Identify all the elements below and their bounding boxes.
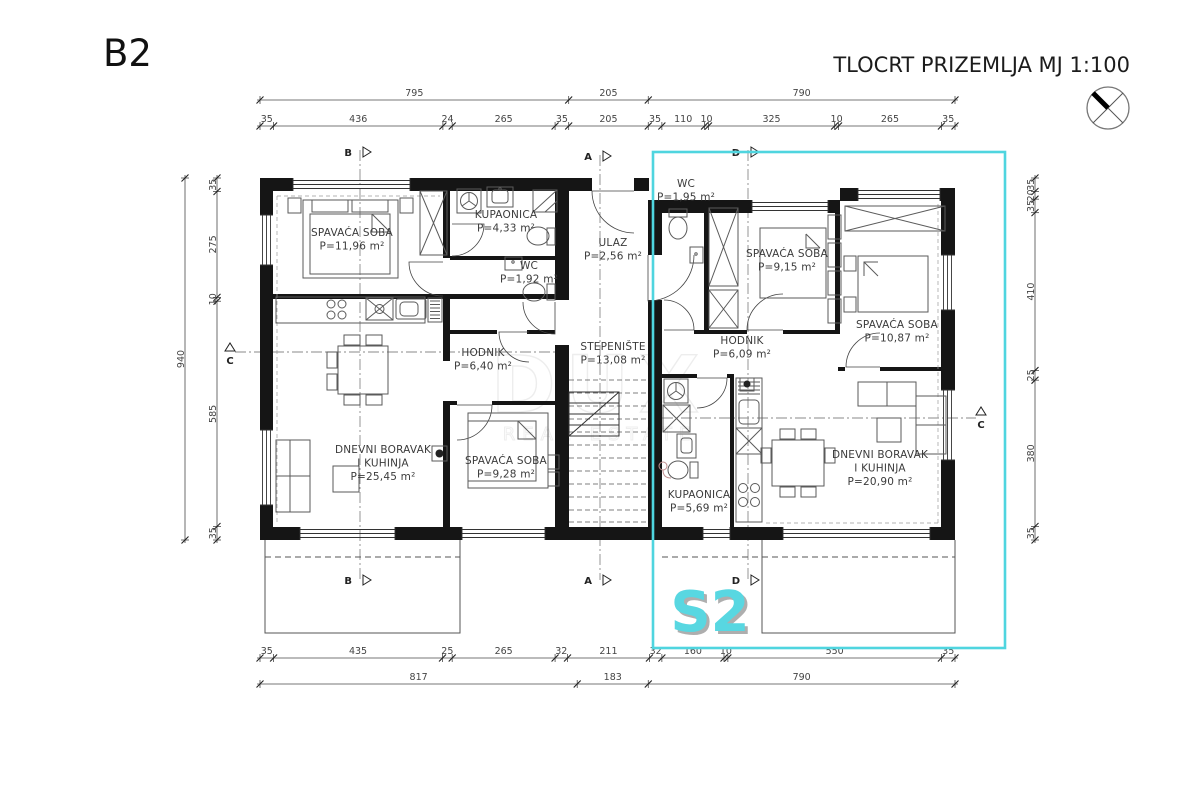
dim-value: 211 bbox=[599, 646, 617, 657]
section-marker-C: C bbox=[226, 356, 233, 367]
dim-value: 10 bbox=[700, 114, 712, 125]
dim-value: 35 bbox=[208, 527, 219, 539]
door-arc bbox=[523, 302, 555, 334]
s2-label: S2 bbox=[670, 580, 749, 645]
dining-left bbox=[327, 335, 388, 405]
room-area-wc-right: P=1,95 m² bbox=[657, 192, 715, 204]
room-area-stepeniste: P=13,08 m² bbox=[581, 355, 646, 367]
dim-top-detail: 35436242653520535110103251026535 bbox=[257, 114, 959, 130]
room-name-living-left: DNEVNI BORAVAK bbox=[335, 444, 432, 456]
room-name-living-right: DNEVNI BORAVAK bbox=[832, 449, 929, 461]
dim-value: 35 bbox=[261, 114, 273, 125]
dim-value: 265 bbox=[495, 646, 513, 657]
dim-value: 265 bbox=[495, 114, 513, 125]
wardrobe-right-3 bbox=[845, 206, 945, 231]
dim-value: 35 bbox=[208, 179, 219, 191]
room-name-living-right: I KUHINJA bbox=[854, 463, 906, 475]
dim-value: 205 bbox=[599, 88, 617, 99]
dim-value: 380 bbox=[1026, 444, 1037, 462]
door-arc bbox=[664, 300, 694, 330]
north-icon bbox=[1087, 87, 1129, 129]
dim-left-detail: 352751058535 bbox=[208, 175, 221, 544]
room-name-ulaz: ULAZ bbox=[599, 237, 628, 249]
dim-value: 585 bbox=[208, 405, 219, 423]
dim-value: 25 bbox=[1026, 369, 1037, 381]
dim-value: 410 bbox=[1026, 283, 1037, 301]
dim-value: 20 bbox=[1026, 189, 1037, 201]
toilet-right-bath bbox=[668, 461, 698, 479]
dim-bottom-overall: 817183790 bbox=[257, 672, 959, 688]
room-area-bathroom-right: P=5,69 m² bbox=[670, 503, 728, 515]
floor-plan-canvas: DUX REAL ESTATE B2 TLOCRT PRIZEMLJA MJ 1… bbox=[0, 0, 1200, 800]
kitchen-left bbox=[276, 297, 426, 323]
room-name-stepeniste: STEPENIŠTE bbox=[580, 340, 645, 353]
section-marker-A: A bbox=[584, 152, 592, 163]
room-area-hodnik-left: P=6,40 m² bbox=[454, 361, 512, 373]
room-name-bedroom2-left: SPAVAĆA SOBA bbox=[465, 454, 548, 467]
room-area-living-right: P=20,90 m² bbox=[848, 476, 913, 488]
dim-value: 795 bbox=[405, 88, 423, 99]
room-name-wc-left: WC bbox=[520, 260, 538, 272]
terrace-left bbox=[265, 540, 460, 633]
dim-value: 24 bbox=[441, 114, 453, 125]
plan-code: B2 bbox=[103, 32, 152, 75]
room-area-ulaz: P=2,56 m² bbox=[584, 251, 642, 263]
room-area-living-left: P=25,45 m² bbox=[351, 471, 416, 483]
room-area-hodnik-right: P=6,09 m² bbox=[713, 349, 771, 361]
room-area-bathroom-left: P=4,33 m² bbox=[477, 223, 535, 235]
door-arc bbox=[457, 405, 492, 440]
room-labels: SPAVAĆA SOBAP=11,96 m²KUPAONICAP=4,33 m²… bbox=[311, 178, 939, 515]
room-name-hodnik-left: HODNIK bbox=[461, 347, 505, 359]
room-name-hodnik-right: HODNIK bbox=[720, 335, 764, 347]
room-area-bedroom2-left: P=9,28 m² bbox=[477, 469, 535, 481]
room-name-bathroom-left: KUPAONICA bbox=[475, 209, 538, 221]
section-marker-C: C bbox=[977, 420, 984, 431]
dim-top-overall: 795205790 bbox=[257, 88, 959, 104]
room-area-bedroom1-right: P=9,15 m² bbox=[758, 262, 816, 274]
dim-left-overall: 940 bbox=[176, 175, 189, 544]
room-name-bedroom2-right: SPAVAĆA SOBA bbox=[856, 318, 939, 331]
door-arc bbox=[747, 294, 783, 330]
tv-outlet-right bbox=[740, 378, 754, 391]
kitchen-right bbox=[736, 378, 762, 522]
dim-value: 205 bbox=[599, 114, 617, 125]
dim-value: 10 bbox=[831, 114, 843, 125]
dim-value: 32 bbox=[555, 646, 567, 657]
dim-value: 436 bbox=[349, 114, 367, 125]
room-name-bathroom-right: KUPAONICA bbox=[668, 489, 731, 501]
toilet-right-wc bbox=[669, 209, 687, 239]
dim-value: 35 bbox=[1026, 200, 1037, 212]
room-name-living-left: I KUHINJA bbox=[357, 458, 409, 470]
dim-value: 183 bbox=[604, 672, 622, 683]
section-marker-B: B bbox=[344, 148, 352, 159]
dim-value: 35 bbox=[556, 114, 568, 125]
dim-value: 35 bbox=[942, 114, 954, 125]
dim-value: 25 bbox=[441, 646, 453, 657]
dim-right-detail: 3520354102538035 bbox=[1026, 175, 1039, 544]
page-title: TLOCRT PRIZEMLJA bbox=[832, 53, 1032, 77]
room-name-wc-right: WC bbox=[677, 178, 695, 190]
sink-right-wc bbox=[690, 247, 703, 263]
section-marker-D: D bbox=[732, 148, 740, 159]
dim-value: 940 bbox=[176, 350, 187, 368]
dishwasher-left bbox=[428, 298, 442, 322]
scale-label: MJ 1:100 bbox=[1038, 53, 1130, 77]
dim-value: 790 bbox=[793, 88, 811, 99]
room-area-bedroom2-right: P=10,87 m² bbox=[865, 333, 930, 345]
dim-value: 790 bbox=[793, 672, 811, 683]
room-name-bedroom1-right: SPAVAĆA SOBA bbox=[746, 247, 829, 260]
dim-value: 435 bbox=[349, 646, 367, 657]
section-marker-B: B bbox=[344, 576, 352, 587]
room-area-wc-left: P=1,92 m² bbox=[500, 274, 558, 286]
door-arc bbox=[648, 255, 694, 301]
door-arc bbox=[409, 262, 443, 296]
dim-value: 275 bbox=[208, 235, 219, 253]
dim-value: 817 bbox=[410, 672, 428, 683]
room-name-bedroom-left: SPAVAĆA SOBA bbox=[311, 226, 394, 239]
dim-value: 35 bbox=[261, 646, 273, 657]
wardrobe-right-1 bbox=[709, 208, 738, 286]
wardrobe-right-2 bbox=[709, 290, 738, 328]
dim-value: 35 bbox=[1026, 527, 1037, 539]
dim-value: 35 bbox=[649, 114, 661, 125]
section-marker-A: A bbox=[584, 576, 592, 587]
dim-value: 35 bbox=[1026, 179, 1037, 191]
door-arc bbox=[592, 191, 634, 233]
floor-plan-page: DUX REAL ESTATE B2 TLOCRT PRIZEMLJA MJ 1… bbox=[0, 0, 1200, 800]
bed-right-2 bbox=[844, 256, 928, 312]
dining-right bbox=[761, 429, 835, 497]
dim-value: 325 bbox=[762, 114, 780, 125]
dim-value: 265 bbox=[881, 114, 899, 125]
dim-value: 10 bbox=[208, 293, 219, 305]
wardrobe-left bbox=[420, 191, 447, 255]
dim-value: 110 bbox=[674, 114, 692, 125]
room-area-bedroom-left: P=11,96 m² bbox=[320, 241, 385, 253]
